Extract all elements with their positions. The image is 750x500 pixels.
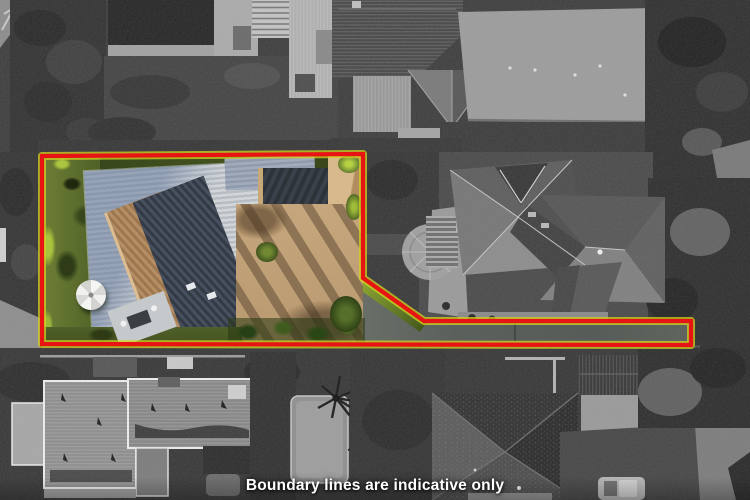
boundary-fringe — [42, 154, 691, 345]
caption-bar: Boundary lines are indicative only — [0, 477, 750, 500]
aerial-photo: Boundary lines are indicative only — [0, 0, 750, 500]
boundary-overlay — [0, 0, 750, 500]
caption-text: Boundary lines are indicative only — [246, 477, 504, 494]
